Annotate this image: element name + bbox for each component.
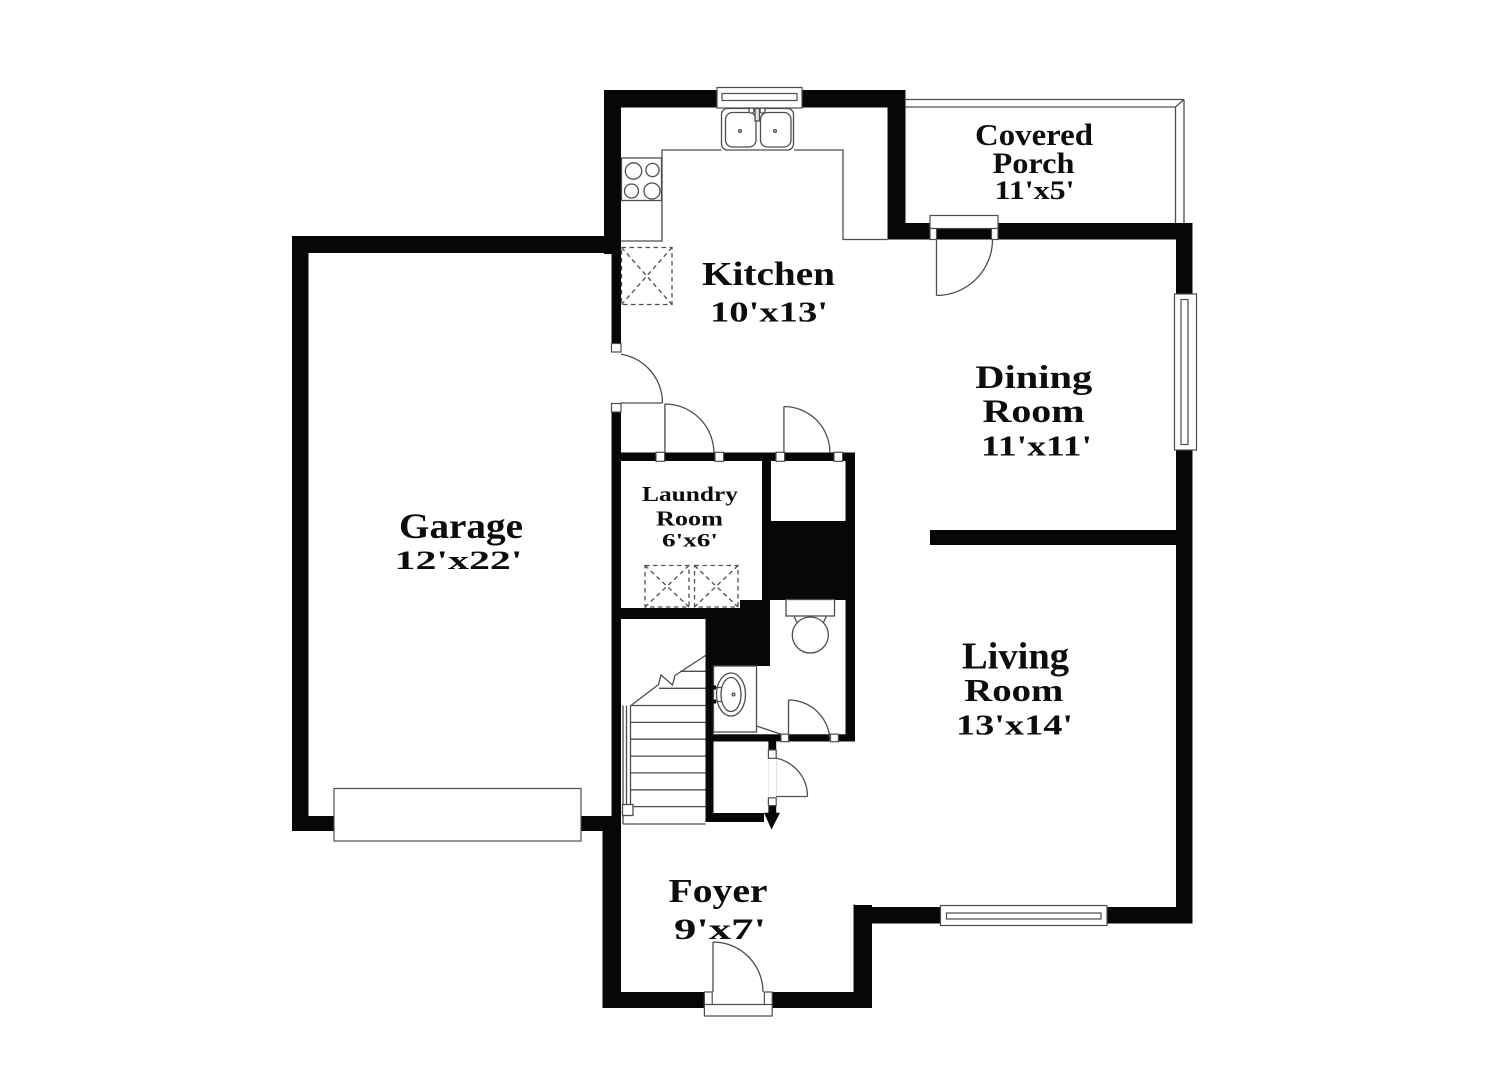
svg-text:6'x6': 6'x6' xyxy=(662,531,718,552)
svg-text:Garage: Garage xyxy=(399,506,523,546)
svg-text:Kitchen: Kitchen xyxy=(702,256,835,293)
svg-text:Room: Room xyxy=(983,394,1085,430)
svg-text:12'x22': 12'x22' xyxy=(395,546,523,575)
svg-text:Laundry: Laundry xyxy=(642,482,738,506)
svg-text:Dining: Dining xyxy=(975,360,1093,396)
svg-text:9'x7': 9'x7' xyxy=(674,913,766,946)
svg-text:11'x5': 11'x5' xyxy=(995,176,1075,205)
svg-text:Foyer: Foyer xyxy=(669,873,768,910)
svg-text:Room: Room xyxy=(964,672,1063,708)
svg-text:10'x13': 10'x13' xyxy=(710,298,828,329)
svg-text:Room: Room xyxy=(656,507,724,531)
svg-text:11'x11': 11'x11' xyxy=(981,432,1092,463)
svg-text:13'x14': 13'x14' xyxy=(956,711,1073,742)
